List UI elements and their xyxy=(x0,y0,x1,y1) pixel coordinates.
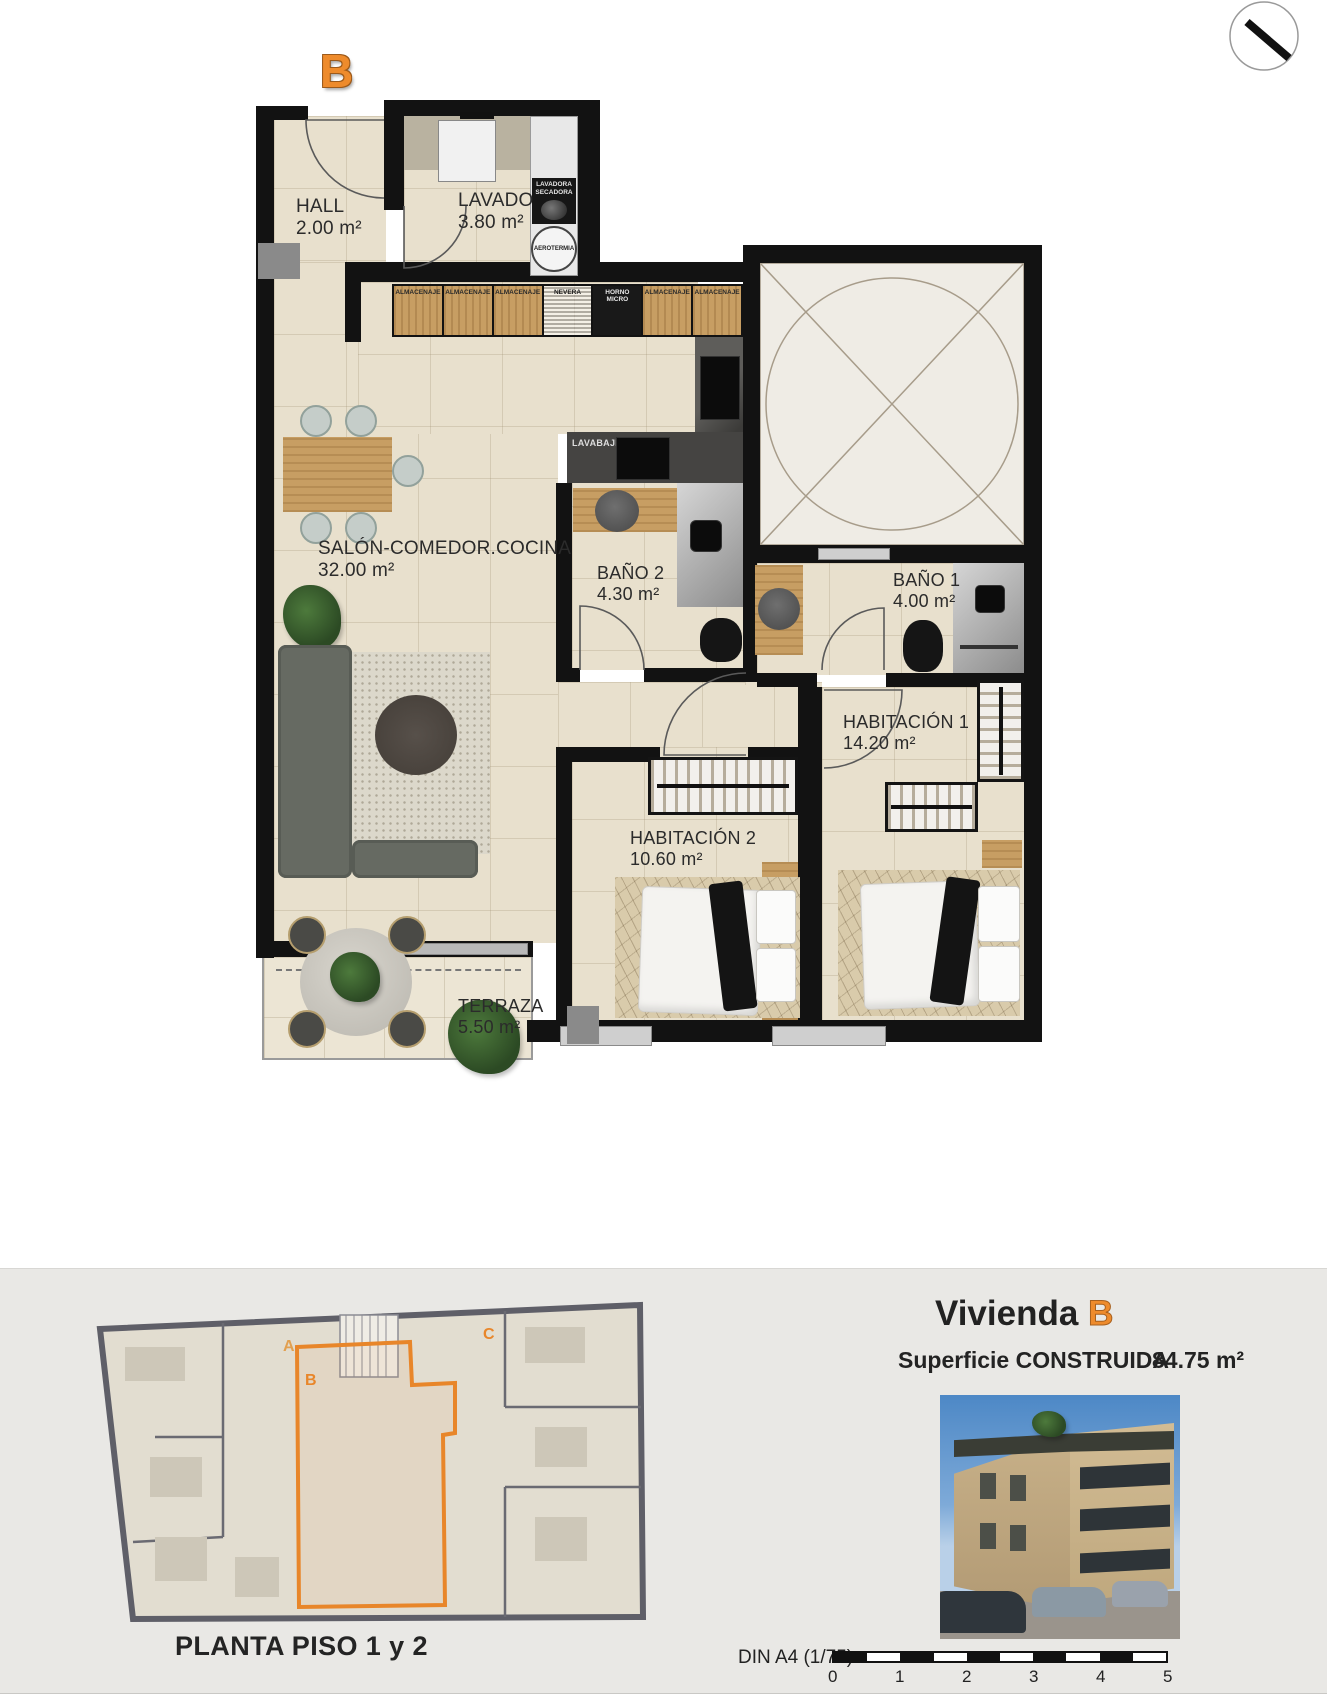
sheet-title: Vivienda B xyxy=(935,1294,1113,1334)
footer-bottom-strip xyxy=(0,1693,1327,1700)
dining-table xyxy=(283,437,392,512)
scale-tick-1: 1 xyxy=(895,1667,904,1687)
bano2-sink xyxy=(595,490,639,532)
oven-micro: HORNO MICRO xyxy=(593,286,643,335)
overview-caption: PLANTA PISO 1 y 2 xyxy=(175,1631,428,1662)
hab1-pillow-1 xyxy=(978,886,1020,942)
bano1-door-arc xyxy=(822,608,884,670)
dining-chair-1 xyxy=(300,405,332,437)
cooktop xyxy=(616,437,670,480)
label-terraza: TERRAZA5.50 m² xyxy=(458,996,543,1038)
salon-round-rug xyxy=(375,695,457,775)
surface-value: 84.75 m² xyxy=(1152,1347,1244,1374)
photo-car-2 xyxy=(1032,1587,1106,1617)
kitchen-cabinet-row: ALMACENAJE ALMACENAJE ALMACENAJE NEVERA … xyxy=(392,284,743,337)
photo-window-band-2 xyxy=(1080,1505,1170,1532)
scale-tick-2: 2 xyxy=(962,1667,971,1687)
label-bano2: BAÑO 24.30 m² xyxy=(597,563,664,605)
lavado-door-arc xyxy=(404,206,466,268)
hab1-wardrobe xyxy=(977,680,1024,782)
surface-label: Superficie CONSTRUIDA xyxy=(898,1347,1169,1374)
bano1-shower-head xyxy=(975,585,1005,613)
photo-window-left-4 xyxy=(1010,1525,1026,1551)
sheet: B xyxy=(0,0,1327,1704)
bano1-sink xyxy=(758,588,800,630)
hab2-pillow-1 xyxy=(756,890,796,944)
scale-tick-4: 4 xyxy=(1096,1667,1105,1687)
hab2-door-arc xyxy=(664,673,746,755)
kitchen-sink-block xyxy=(700,356,740,420)
bano1-toilet xyxy=(903,620,943,672)
terraza-chair-1 xyxy=(288,916,326,954)
aerotermia-unit: AEROTERMIA xyxy=(531,226,577,272)
bano2-toilet xyxy=(700,618,742,662)
bano2-door-arc xyxy=(580,606,644,670)
scale-seg xyxy=(834,1653,867,1661)
overview-letter-c: C xyxy=(483,1326,495,1343)
entry-door-arc xyxy=(306,120,384,198)
label-lavado: LAVADO3.80 m² xyxy=(458,190,533,234)
label-bano1: BAÑO 14.00 m² xyxy=(893,570,960,612)
hab1-nightstand xyxy=(982,840,1022,868)
dining-chair-5 xyxy=(392,455,424,487)
terraza-chair-3 xyxy=(288,1010,326,1048)
overview-plan: A B C xyxy=(55,1287,655,1623)
photo-window-left-2 xyxy=(1010,1475,1026,1501)
scale-tick-0: 0 xyxy=(828,1667,837,1687)
photo-window-band-1 xyxy=(1080,1463,1170,1490)
sofa-vertical xyxy=(278,645,352,878)
washer-dryer: LAVADORA SECADORA xyxy=(532,178,576,224)
scale-bar xyxy=(832,1651,1168,1663)
fridge: NEVERA xyxy=(544,286,594,335)
hab1-pillow-2 xyxy=(978,946,1020,1002)
dining-chair-2 xyxy=(345,405,377,437)
washbasin-tap xyxy=(460,112,494,119)
hab2-pillow-2 xyxy=(756,948,796,1002)
photo-roof-plant xyxy=(1032,1411,1066,1437)
cabinet-almacenaje-2: ALMACENAJE xyxy=(444,286,494,335)
bano1-shower-rail xyxy=(960,645,1018,649)
sheet-title-letter: B xyxy=(1088,1294,1113,1333)
washer-label-1: LAVADORA xyxy=(536,181,572,188)
hab2-closet xyxy=(648,757,798,815)
aerotermia-label: AEROTERMIA xyxy=(534,246,574,252)
cabinet-almacenaje-3: ALMACENAJE xyxy=(494,286,544,335)
photo-car-3 xyxy=(1112,1581,1168,1607)
bano1-shower xyxy=(953,563,1024,673)
label-salon: SALÓN-COMEDOR.COCINA32.00 m² xyxy=(318,538,571,582)
label-hab1: HABITACIÓN 114.20 m² xyxy=(843,712,969,754)
washbasin xyxy=(438,120,496,182)
terraza-chair-4 xyxy=(388,1010,426,1048)
overview-letter-b: B xyxy=(305,1372,317,1389)
photo-car-1 xyxy=(940,1591,1026,1633)
photo-window-left-1 xyxy=(980,1473,996,1499)
footer-panel: A B C PLANTA PISO 1 y 2 Vivienda B Super… xyxy=(0,1268,1327,1699)
building-photo xyxy=(940,1395,1180,1639)
hab1-closet xyxy=(885,782,978,832)
label-hall: HALL2.00 m² xyxy=(296,196,362,240)
photo-building-left-face xyxy=(954,1435,1070,1611)
label-hab2: HABITACIÓN 210.60 m² xyxy=(630,828,756,870)
washer-label-2: SECADORA xyxy=(535,189,572,196)
bano2-shower-head xyxy=(690,520,722,552)
cabinet-almacenaje-1: ALMACENAJE xyxy=(394,286,444,335)
cabinet-almacenaje-5: ALMACENAJE xyxy=(693,286,741,335)
photo-window-left-3 xyxy=(980,1523,996,1549)
scale-tick-3: 3 xyxy=(1029,1667,1038,1687)
cabinet-almacenaje-4: ALMACENAJE xyxy=(643,286,693,335)
sofa-chaise xyxy=(352,840,478,878)
scale-tick-5: 5 xyxy=(1163,1667,1172,1687)
overview-letter-a: A xyxy=(283,1338,295,1355)
terraza-chair-2 xyxy=(388,916,426,954)
